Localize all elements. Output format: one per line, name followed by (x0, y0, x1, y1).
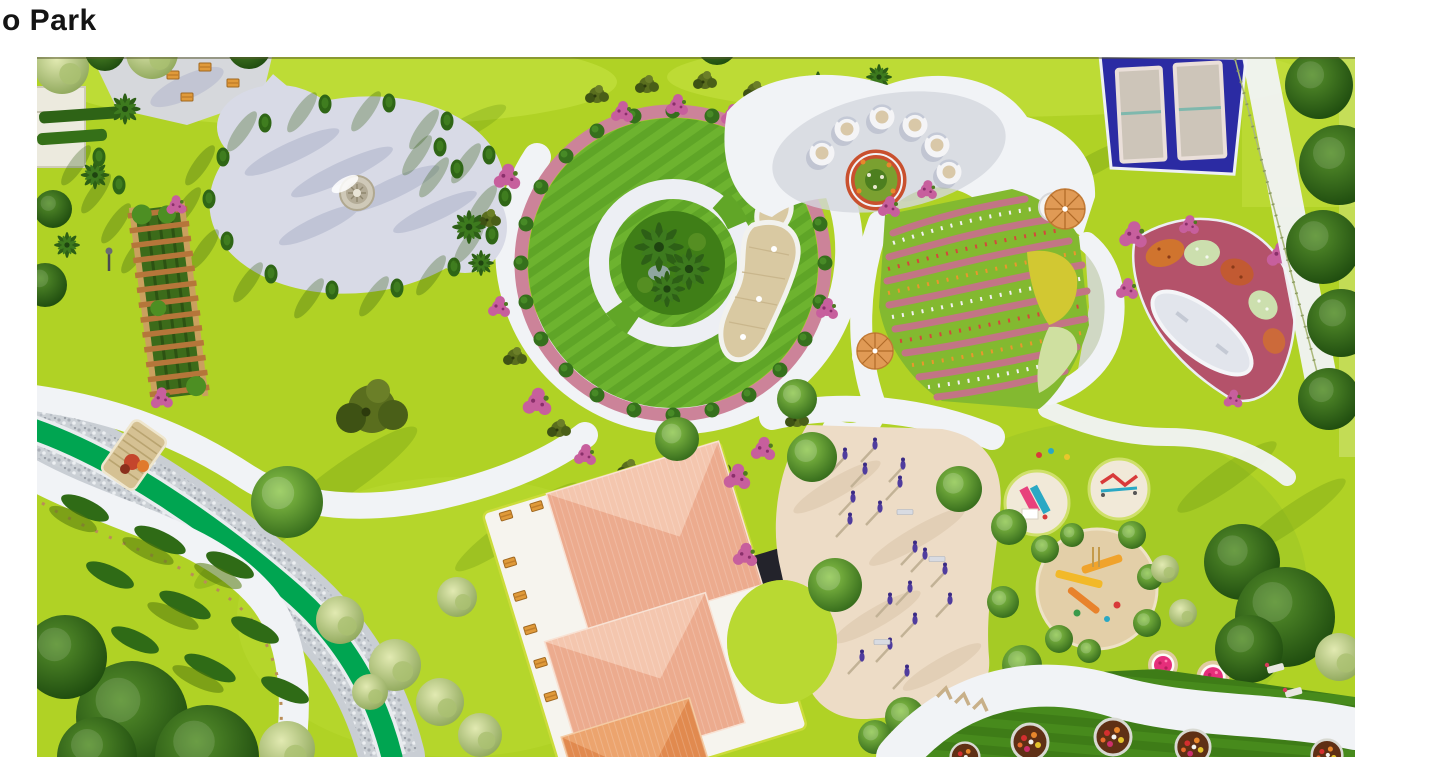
round-flower-bed (850, 154, 902, 206)
document-page: o Park (0, 0, 1441, 773)
tennis-courts (1098, 57, 1246, 174)
playground-climbers (1089, 459, 1149, 519)
park-render-image (37, 57, 1355, 757)
palm-island (621, 211, 725, 315)
page-title: o Park (2, 4, 97, 38)
photo-top-edge (37, 57, 1355, 59)
